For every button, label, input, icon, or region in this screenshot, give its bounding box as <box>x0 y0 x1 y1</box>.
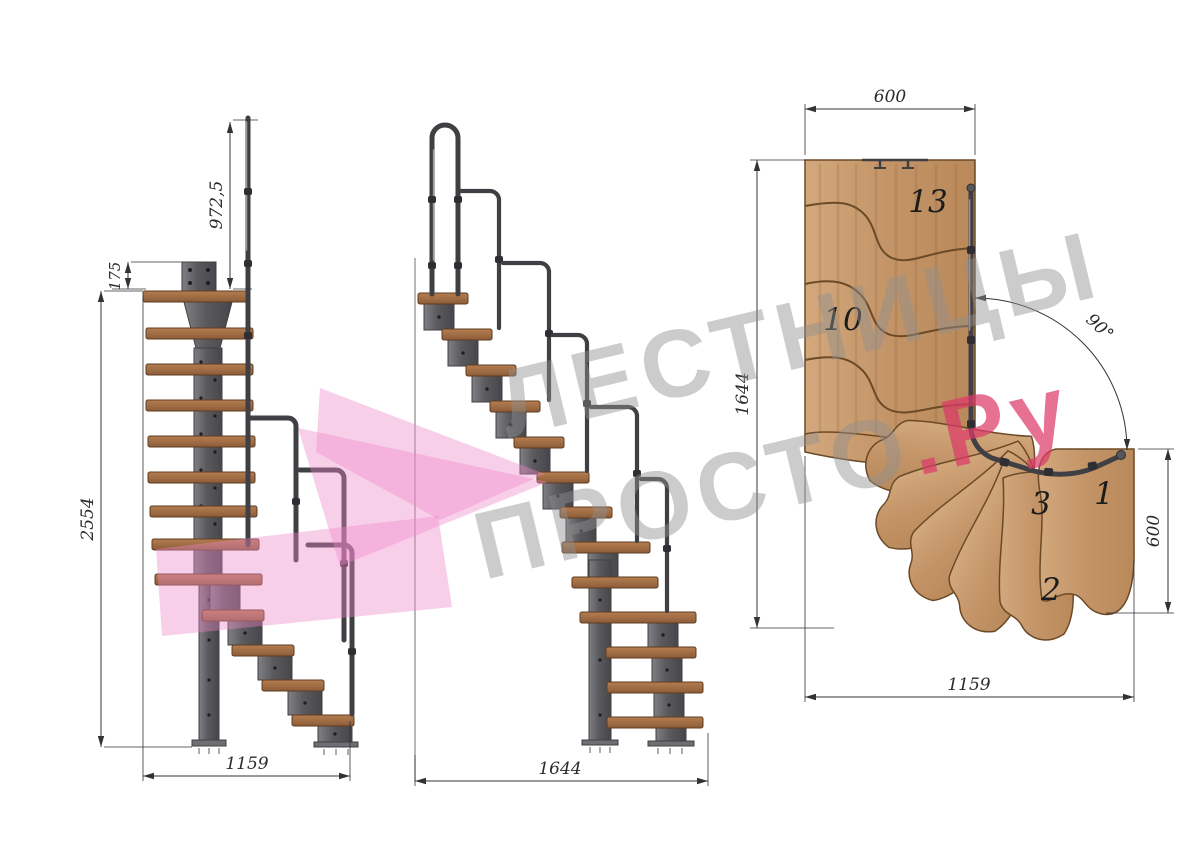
dim-label-1159-plan: 1159 <box>947 675 990 695</box>
handrail-loop <box>432 125 458 294</box>
tread <box>150 506 257 517</box>
wall-mount-plate <box>182 262 216 291</box>
tread <box>232 645 294 656</box>
tread <box>607 717 703 728</box>
tread <box>148 472 255 483</box>
staircase-drawing: 972,5 175 2554 1159 <box>0 0 1200 849</box>
tread <box>143 291 250 302</box>
tread <box>146 364 253 375</box>
dim-label-1644-front: 1644 <box>538 759 581 779</box>
dim-label-972-5: 972,5 <box>207 181 227 230</box>
tread <box>442 329 492 340</box>
step-label-2: 2 <box>1040 572 1061 608</box>
tread <box>148 436 255 447</box>
tread <box>418 293 468 304</box>
dim-label-2554: 2554 <box>78 497 98 541</box>
dim-label-600-top: 600 <box>874 87 907 107</box>
step-label-1: 1 <box>1094 476 1114 512</box>
step-label-13: 13 <box>908 184 947 220</box>
column-gusset <box>184 302 232 348</box>
column-base-flange <box>192 740 226 746</box>
dimension-plan-top-width: 600 <box>805 87 975 155</box>
dimension-side-total-height: 2554 <box>78 291 192 747</box>
dim-label-175: 175 <box>106 262 124 291</box>
step-label-3: 3 <box>1031 486 1051 522</box>
tread <box>572 577 658 588</box>
dim-label-1159-side: 1159 <box>225 754 268 774</box>
tread <box>580 612 696 623</box>
tread <box>606 647 696 658</box>
tread <box>146 328 253 339</box>
tread <box>146 400 253 411</box>
tread <box>262 680 324 691</box>
handrail-segment <box>459 191 499 328</box>
tread <box>292 715 354 726</box>
dim-label-600-right: 600 <box>1144 515 1164 548</box>
dimension-side-bracket-offset: 175 <box>106 262 182 291</box>
tread <box>607 682 703 693</box>
